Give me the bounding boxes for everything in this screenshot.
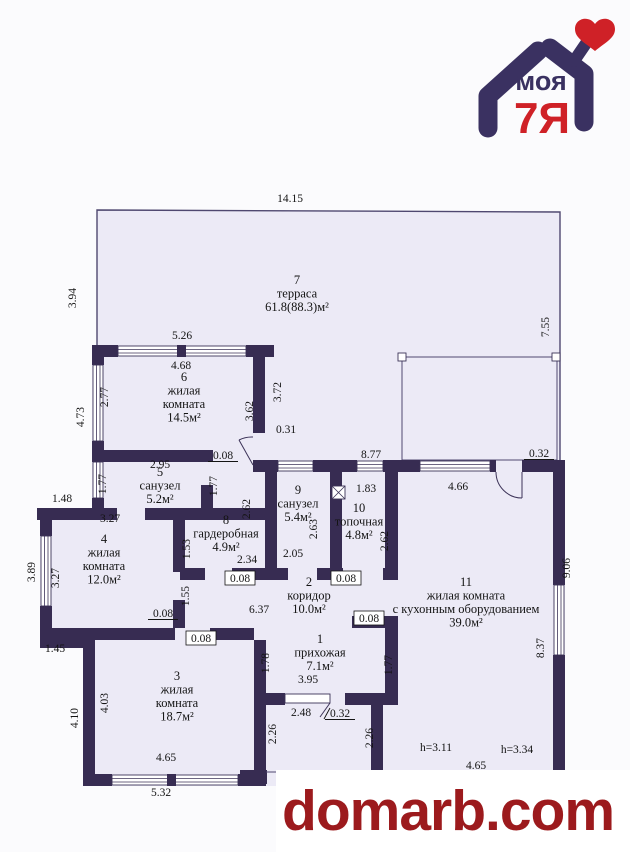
dimension-label: 0.08 (359, 613, 379, 625)
dimension-label: 4.03 (99, 693, 111, 713)
room-label: 8 (223, 513, 229, 527)
room-label: 4.9м² (212, 540, 240, 554)
dimension-label: 5.32 (151, 787, 171, 799)
room-label: жилая (167, 384, 201, 398)
agency-logo: моя 7Я (458, 6, 623, 151)
dimension-label: 1.77 (208, 476, 220, 496)
dimension-label: 1.83 (356, 483, 376, 495)
room-label: гардеробная (193, 527, 259, 541)
dimension-label: 1.55 (180, 586, 192, 606)
room-label: жилая комната (426, 589, 506, 603)
dimension-label: 8.37 (535, 638, 547, 658)
room-label: 39.0м² (449, 616, 483, 630)
dimension-label: 2.05 (283, 548, 303, 560)
room-label: 7 (294, 273, 300, 287)
room-label: 10 (353, 501, 366, 515)
veranda-post (398, 353, 406, 361)
dimension-label: 6.37 (249, 604, 269, 616)
room-label: 3 (174, 669, 180, 683)
dimension-label: 5.26 (172, 330, 192, 342)
room-label: 61.8(88.3)м² (265, 300, 329, 314)
dimension-label: 1.77 (383, 655, 395, 675)
room-label: 7.1м² (306, 659, 334, 673)
room-label: топочная (335, 515, 384, 529)
dimension-label: 9.06 (561, 558, 573, 578)
dimension-label: 1.77 (97, 474, 109, 494)
room-label: жилая (160, 683, 194, 697)
room-label: 5 (157, 465, 163, 479)
room-label: 2 (306, 575, 312, 589)
room-label: 1 (317, 632, 323, 646)
dimension-label: h=3.11 (420, 742, 452, 754)
dimension-label: 0.32 (529, 448, 549, 460)
dimension-label: 0.32 (330, 708, 350, 720)
room-label: 4 (101, 532, 108, 546)
dimension-label: 3.95 (298, 674, 318, 686)
dimension-label: 2.62 (241, 499, 253, 519)
dimension-label: 3.62 (244, 401, 256, 421)
room-label: 10.0м² (292, 602, 326, 616)
dimension-label: 3.27 (50, 568, 62, 588)
dimension-label: 3.94 (67, 288, 79, 308)
room-label: санузел (278, 497, 319, 511)
room-label: прихожая (294, 646, 346, 660)
dimension-label: 2.48 (291, 707, 311, 719)
watermark: domarb.com (276, 770, 630, 852)
room-label: комната (163, 397, 206, 411)
dimension-label: 1.45 (45, 643, 65, 655)
dimension-label: 7.55 (540, 317, 552, 337)
room-label: коридор (287, 589, 331, 603)
dimension-label: 0.08 (191, 633, 211, 645)
dimension-label: 4.10 (69, 708, 81, 728)
room-label: 4.8м² (345, 528, 373, 542)
dimension-label: 4.65 (156, 752, 176, 764)
dimension-label: 1.53 (181, 539, 193, 559)
room-label: комната (156, 696, 199, 710)
dimension-label: h=3.34 (501, 744, 534, 756)
dimension-label: 4.73 (75, 407, 87, 427)
room-label: 11 (460, 575, 472, 589)
dimension-label: 2.34 (237, 554, 257, 566)
logo-text-top: моя (515, 66, 567, 96)
dimension-label: 14.15 (277, 193, 303, 205)
room-label: 18.7м² (160, 710, 194, 724)
dimension-label: 2.77 (99, 387, 111, 407)
watermark-text: domarb.com (282, 778, 614, 844)
dimension-label: 3.27 (100, 513, 120, 525)
room-label: санузел (140, 479, 181, 493)
dimension-label: 4.66 (448, 481, 468, 493)
dimension-label: 8.77 (361, 449, 381, 461)
dimension-label: 0.08 (230, 573, 250, 585)
dimension-label: 3.72 (272, 382, 284, 402)
room-label: с кухонным оборудованием (393, 602, 540, 616)
room-label: 9 (295, 483, 301, 497)
room-label: 12.0м² (87, 573, 121, 587)
dimension-label: 0.08 (336, 573, 356, 585)
dimension-label: 2.26 (267, 724, 279, 744)
dimension-label: 0.08 (213, 450, 233, 462)
room-label: 5.4м² (284, 510, 312, 524)
dimension-label: 0.08 (153, 608, 173, 620)
room-label: жилая (87, 546, 121, 560)
dimension-label: 0.31 (276, 424, 296, 436)
dimension-label: 2.26 (364, 728, 376, 748)
room-label: комната (83, 559, 126, 573)
dimension-label: 2.62 (379, 531, 391, 551)
room-label: терраса (277, 287, 318, 301)
dimension-label: 1.48 (52, 493, 72, 505)
dimension-label: 3.89 (26, 562, 38, 582)
room-label: 14.5м² (167, 411, 201, 425)
veranda-post (552, 353, 560, 361)
dimension-label: 1.78 (260, 653, 272, 673)
screenshot-root: 14.153.947.555.264.682.774.733.623.720.3… (0, 0, 630, 852)
logo-text-bottom: 7Я (514, 94, 570, 143)
room-label: 6 (181, 370, 187, 384)
room-label: 5.2м² (146, 492, 174, 506)
boiler-icon (332, 486, 345, 499)
